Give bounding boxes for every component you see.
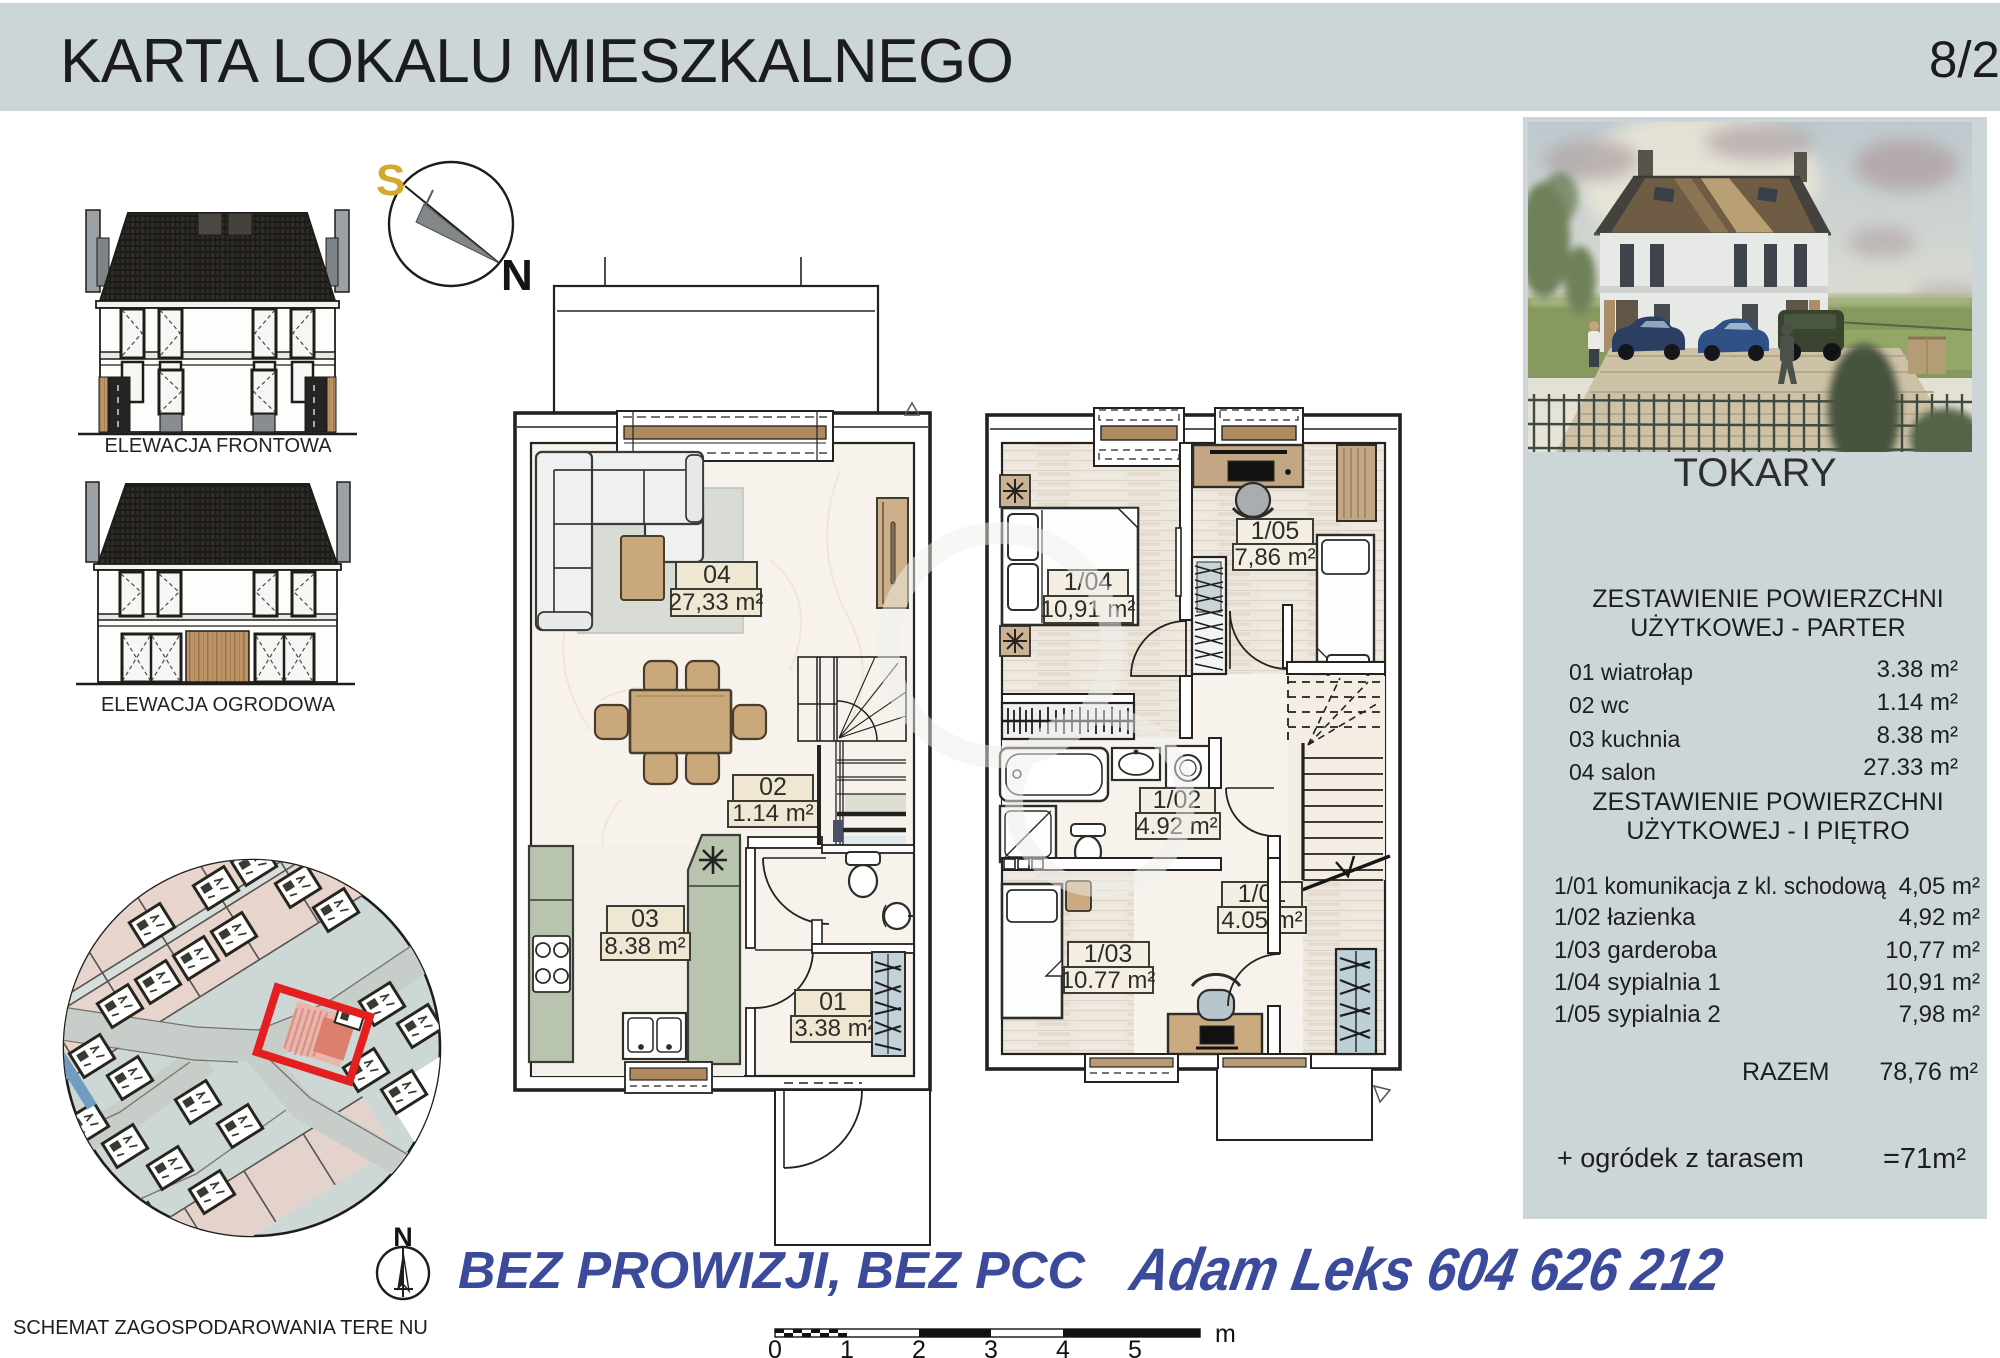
svg-text:01 wiatrołap: 01 wiatrołap xyxy=(1569,659,1693,685)
svg-text:1.14 m²: 1.14 m² xyxy=(732,800,813,827)
svg-text:1/05: 1/05 xyxy=(1251,517,1300,545)
svg-text:78,76 m²: 78,76 m² xyxy=(1879,1058,1978,1086)
svg-text:7,98 m²: 7,98 m² xyxy=(1899,1001,1980,1028)
svg-text:27.33 m²: 27.33 m² xyxy=(1863,754,1958,781)
svg-text:RAZEM: RAZEM xyxy=(1742,1058,1830,1086)
svg-text:3.38 m²: 3.38 m² xyxy=(794,1015,875,1042)
svg-text:3: 3 xyxy=(984,1336,998,1358)
svg-text:1/03 garderoba: 1/03 garderoba xyxy=(1554,937,1717,964)
svg-text:ELEWACJA OGRODOWA: ELEWACJA OGRODOWA xyxy=(101,694,336,716)
svg-text:4.05 m²: 4.05 m² xyxy=(1221,907,1302,934)
svg-text:ELEWACJA FRONTOWA: ELEWACJA FRONTOWA xyxy=(104,435,332,457)
svg-text:4,05 m²: 4,05 m² xyxy=(1899,873,1980,900)
svg-text:+ ogródek z tarasem: + ogródek z tarasem xyxy=(1557,1143,1804,1173)
svg-text:1/01 komunikacja z kl. schod: 1/01 komunikacja z kl. schodową xyxy=(1554,873,1887,900)
svg-text:KARTA LOKALU MIESZKALNEGO: KARTA LOKALU MIESZKALNEGO xyxy=(60,27,1013,96)
svg-text:01: 01 xyxy=(819,988,847,1016)
svg-text:Adam Leks 604 626 212: Adam Leks 604 626 212 xyxy=(1124,1235,1728,1302)
svg-text:2: 2 xyxy=(912,1336,926,1358)
svg-text:10,91 m²: 10,91 m² xyxy=(1041,596,1136,623)
svg-text:m: m xyxy=(1215,1320,1236,1348)
svg-text:10,91 m²: 10,91 m² xyxy=(1885,969,1980,996)
svg-text:8.38 m²: 8.38 m² xyxy=(1877,722,1958,749)
svg-text:8.38 m²: 8.38 m² xyxy=(604,933,685,960)
svg-text:8/2: 8/2 xyxy=(1929,31,2000,88)
svg-text:SCHEMAT ZAGOSPODAROWANIA TERE: SCHEMAT ZAGOSPODAROWANIA TERE NU xyxy=(13,1317,428,1339)
svg-text:03 kuchnia: 03 kuchnia xyxy=(1569,726,1680,752)
svg-text:1: 1 xyxy=(840,1336,854,1358)
svg-text:10.77 m²: 10.77 m² xyxy=(1061,967,1156,994)
svg-text:BEZ PROWIZJI, BEZ PCC: BEZ PROWIZJI, BEZ PCC xyxy=(458,1242,1086,1300)
svg-text:02: 02 xyxy=(759,773,787,801)
svg-text:1/02 łazienka: 1/02 łazienka xyxy=(1554,904,1696,931)
svg-text:ZESTAWIENIE POWIERZCHNI: ZESTAWIENIE POWIERZCHNI xyxy=(1592,585,1943,613)
svg-text:7,86 m²: 7,86 m² xyxy=(1234,544,1315,571)
svg-text:27,33 m²: 27,33 m² xyxy=(669,589,764,616)
svg-text:04 salon: 04 salon xyxy=(1569,759,1656,785)
svg-text:ZESTAWIENIE POWIERZCHNI: ZESTAWIENIE POWIERZCHNI xyxy=(1592,788,1943,816)
svg-text:UŻYTKOWEJ - PARTER: UŻYTKOWEJ - PARTER xyxy=(1630,613,1905,642)
svg-text:3.38 m²: 3.38 m² xyxy=(1877,656,1958,683)
svg-text:4,92 m²: 4,92 m² xyxy=(1899,904,1980,931)
svg-text:=71m²: =71m² xyxy=(1883,1143,1966,1175)
svg-text:S: S xyxy=(376,156,405,205)
svg-text:UŻYTKOWEJ - I PIĘTRO: UŻYTKOWEJ - I PIĘTRO xyxy=(1626,816,1909,845)
svg-text:1.14 m²: 1.14 m² xyxy=(1877,689,1958,716)
svg-text:5: 5 xyxy=(1128,1336,1142,1358)
svg-text:03: 03 xyxy=(631,905,659,933)
svg-text:1/04 sypialnia 1: 1/04 sypialnia 1 xyxy=(1554,969,1721,996)
svg-text:1/03: 1/03 xyxy=(1084,940,1133,968)
svg-text:4: 4 xyxy=(1056,1336,1070,1358)
svg-text:N: N xyxy=(501,251,533,300)
svg-text:04: 04 xyxy=(703,561,731,589)
svg-text:10,77 m²: 10,77 m² xyxy=(1885,937,1980,964)
svg-text:02 wc: 02 wc xyxy=(1569,692,1629,718)
svg-text:1/05 sypialnia 2: 1/05 sypialnia 2 xyxy=(1554,1001,1721,1028)
svg-text:TOKARY: TOKARY xyxy=(1673,451,1836,495)
svg-text:0: 0 xyxy=(768,1336,782,1358)
